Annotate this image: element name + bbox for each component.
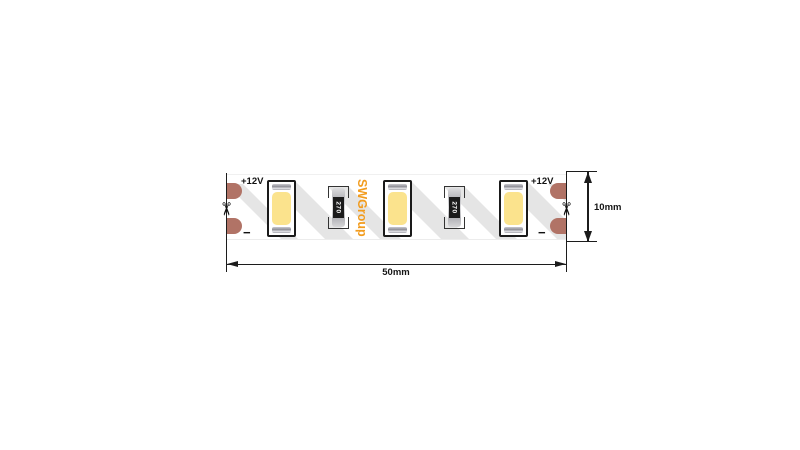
led-contact (272, 184, 291, 190)
cut-line-right (566, 171, 567, 272)
arrow-left-icon (227, 261, 238, 267)
smd-led (499, 180, 528, 237)
smd-led (267, 180, 296, 237)
width-dimension-label: 50mm (376, 267, 416, 278)
voltage-label-right: +12V (531, 176, 553, 187)
led-emitter (272, 192, 291, 225)
led-contact (272, 227, 291, 233)
voltage-label-left: +12V (241, 176, 263, 187)
extension-line-top (566, 171, 597, 172)
smd-resistor: 270 (444, 186, 465, 229)
led-contact (504, 227, 523, 233)
minus-polarity-left: − (243, 228, 251, 238)
brand-logo-text: SWGroup (355, 179, 369, 235)
extension-line-bottom (566, 241, 597, 242)
cut-line-left (226, 173, 227, 272)
resistor-value: 270 (449, 197, 460, 218)
arrow-up-icon (584, 172, 592, 183)
smd-led (383, 180, 412, 237)
smd-resistor: 270 (328, 186, 349, 229)
led-emitter (388, 192, 407, 225)
scissors-icon: ✂ (214, 197, 238, 221)
led-emitter (504, 192, 523, 225)
led-strip-diagram: 270 270 SWGroup +12V +12V − − ✂ ✂ 10mm 5… (0, 0, 800, 450)
led-contact (504, 184, 523, 190)
led-contact (388, 184, 407, 190)
led-contact (388, 227, 407, 233)
minus-polarity-right: − (538, 228, 546, 238)
arrow-down-icon (584, 231, 592, 242)
arrow-right-icon (555, 261, 566, 267)
height-dimension-label: 10mm (594, 202, 621, 213)
resistor-value: 270 (333, 197, 344, 218)
dimension-line-width (227, 264, 566, 265)
scissors-icon: ✂ (554, 197, 578, 221)
